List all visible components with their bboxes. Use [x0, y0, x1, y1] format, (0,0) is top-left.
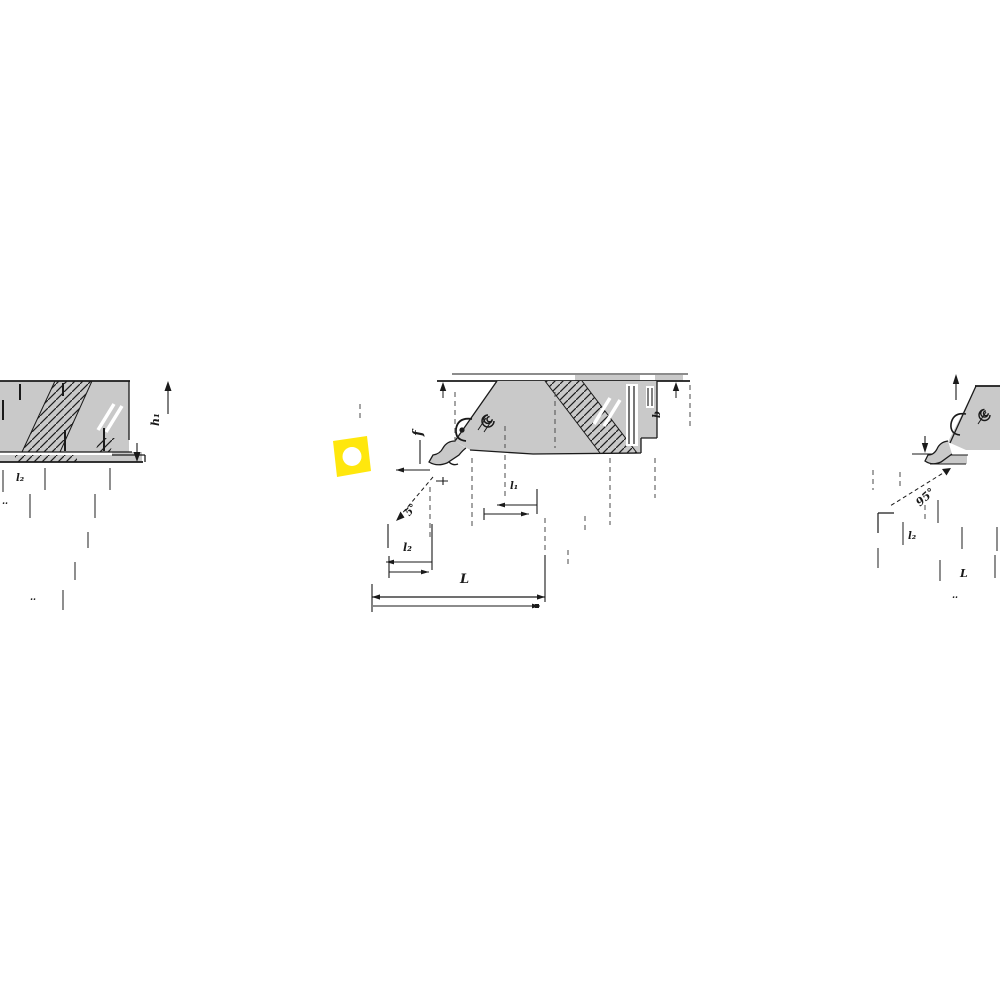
dimension-l1 — [484, 489, 537, 520]
figure-center-top-view — [360, 374, 690, 612]
insert-hole — [343, 447, 362, 466]
dim-label-l1: l₁ — [510, 482, 518, 492]
dimension-arrow-up — [165, 381, 172, 414]
dim-label-b: b — [653, 411, 663, 418]
dim-label-right-L: L — [960, 568, 968, 579]
dimension-arrow-up — [953, 374, 959, 400]
technical-drawing — [0, 0, 1000, 1000]
dim-label-right-l2: l₂ — [908, 532, 916, 542]
insert-shape-icon — [333, 436, 371, 477]
insert-tip — [429, 441, 466, 465]
catalog-drawing-page: h₁ l₂ ‥ ‥ f l₁ 5° l₂ L b 95° l₂ L ‥ — [0, 0, 1000, 1000]
dimension-arrow-down — [912, 436, 932, 454]
dim-marks-right: ‥ — [952, 592, 959, 601]
figure-left-side-view — [0, 381, 172, 610]
dim-label-l2: l₂ — [403, 542, 412, 553]
figure-right-top-view — [873, 374, 1000, 581]
dim-marks-left-lower: ‥ — [30, 594, 37, 603]
dim-label-L: L — [460, 573, 469, 586]
dim-label-left-l2: l₂ — [16, 474, 24, 484]
dim-label-h1: h₁ — [150, 413, 161, 426]
dim-label-f: f — [412, 430, 425, 436]
dim-marks-left-row2: ‥ — [2, 498, 9, 507]
dimension-L — [372, 555, 545, 612]
